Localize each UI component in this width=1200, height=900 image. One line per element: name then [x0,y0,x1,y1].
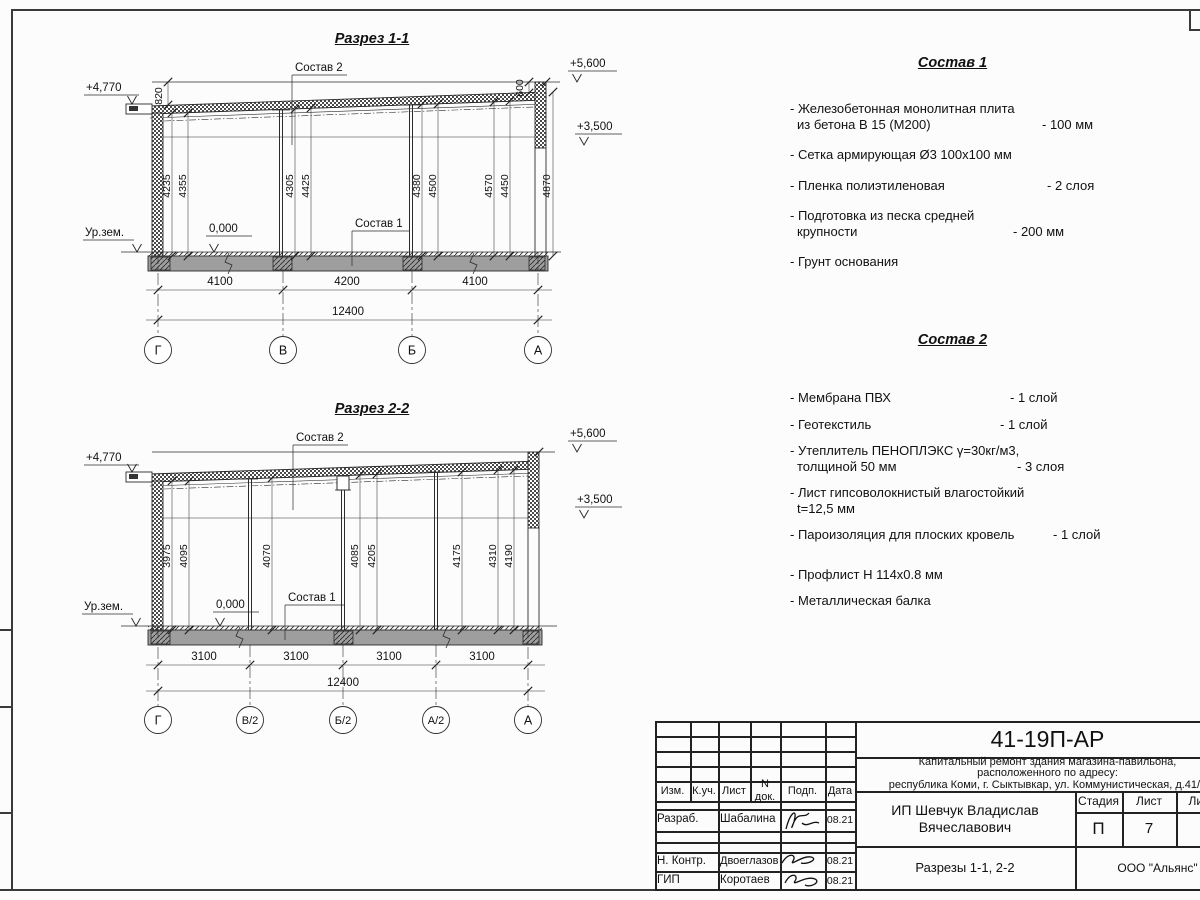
foundation-pad [334,631,353,644]
dim-label: 4500 [427,174,439,198]
signer-name: Шабалина [720,809,780,831]
elevation-label: 0,000 [216,599,245,611]
material-item: - Подготовка из песка средней крупности … [790,208,1115,239]
elevation-label: +4,770 [86,452,122,464]
dim-label: 12400 [332,306,364,318]
dim-label: 12400 [327,677,359,689]
material-item: - Пленка полиэтиленовая - 2 слоя [790,178,1115,194]
material-item: - Лист гипсоволокнистый влагостойкий t=1… [790,485,1115,516]
drawing-sheet: { "s1": { "title": "Разрез 1-1", "label_… [0,0,1200,900]
dim-label: 600 [514,79,526,97]
tb-line [655,766,855,768]
dim-label: 4355 [177,174,189,198]
dim-label: 4450 [499,174,511,198]
tb-line [655,842,855,844]
axis-label: А/2 [428,715,445,727]
tb-line [655,831,855,833]
elevation-label: +3,500 [577,494,613,506]
signature [777,847,829,891]
floor-slab [148,256,548,271]
sheets-header: Листов [1176,791,1200,812]
material-item: - Сетка армирующая Ø3 100х100 мм [790,147,1115,163]
project-description: Капитальный ремонт здания магазина-павил… [855,757,1200,791]
client-name: ИП Шевчук Владислав Вячеславович [875,791,1055,846]
dim-label: 4870 [541,174,553,198]
dim-label: 4200 [334,276,360,288]
material-item: - Утеплитель ПЕНОПЛЭКС γ=30кг/м3, толщин… [790,443,1115,474]
composition-1-block: Состав 1 - Железобетонная монолитная пли… [790,55,1115,270]
axis-label: В/2 [242,715,259,727]
leader-label: Состав 2 [296,432,344,444]
dim-label: 4100 [207,276,233,288]
col-header-ndok: N док. [750,781,780,801]
dim-label: 3100 [376,651,402,663]
signer-date: 08.21 [825,871,855,891]
axis-label: Г [155,344,162,358]
dim-label: 4305 [284,174,296,198]
signature [780,805,825,835]
material-item: - Геотекстиль - 1 слой [790,417,1115,433]
axis-label: Б/2 [335,715,351,727]
title-block: Изм. К.уч. Лист N док. Подп. Дата Разраб… [655,721,1200,891]
material-item: - Пароизоляция для плоских кровель - 1 с… [790,527,1115,543]
material-item: - Профлист Н 114х0.8 мм [790,567,1115,583]
foundation-pad [273,257,292,270]
dim-label: 3100 [469,651,495,663]
parapet-right [528,452,539,528]
signer-name: Коротаев [720,871,782,891]
organization-name: ООО "Альянс" [1075,846,1200,891]
col-header-kuch: К.уч. [690,781,718,801]
signer-role: ГИП [657,871,715,891]
composition-1-title: Состав 1 [790,55,1115,71]
section-2-2-geometry [82,441,622,734]
document-code: 41-19П-АР [855,721,1200,757]
axis-label: В [279,344,287,358]
axis-label: А [524,714,533,728]
foundation-pad [523,631,539,644]
drawing-title: Разрезы 1-1, 2-2 [855,846,1075,891]
foundation-pad [529,257,545,270]
leader-label: Состав 2 [295,62,343,74]
foundation-pad [151,631,170,644]
foundation-pad [151,257,170,270]
dim-label: 4175 [451,544,463,568]
sheet-header: Лист [1122,791,1176,812]
axis-label: Б [408,344,416,358]
dim-label: 4085 [349,544,361,568]
col-header-izm: Изм. [655,781,690,801]
ground-label: Ур.зем. [85,227,124,239]
axis-label: Г [155,714,162,728]
section-1-1-geometry [83,71,622,364]
elevation-label: +3,500 [577,121,613,133]
dim-label: 4570 [483,174,495,198]
sheet-number: 7 [1122,812,1176,846]
signer-name: Двоеглазов [720,852,782,871]
dim-label: 820 [153,87,165,105]
signer-date: 08.21 [825,809,855,831]
leader-label: Состав 1 [355,218,403,230]
elevation-label: +4,770 [86,82,122,94]
col-header-podp: Подп. [780,781,825,801]
axis-label: А [534,344,543,358]
elevation-label: +5,600 [570,58,606,70]
signer-role: Н. Контр. [657,852,715,871]
leader-label: Состав 1 [288,592,336,604]
dim-label: 3100 [191,651,217,663]
parapet-right [535,82,546,148]
col-header-list: Лист [718,781,750,801]
dim-label: 4380 [411,174,423,198]
dim-label: 3975 [161,544,173,568]
composition-2-title: Состав 2 [790,332,1115,348]
tb-line [655,751,855,753]
material-item: - Металлическая балка [790,593,1115,609]
dim-label: 4100 [462,276,488,288]
signer-role: Разраб. [657,809,715,831]
composition-2-block: Состав 2 - Мембрана ПВХ - 1 слой - Геоте… [790,332,1115,609]
dim-label: 3100 [283,651,309,663]
stage-header: Стадия [1075,791,1122,812]
elevation-label: +5,600 [570,428,606,440]
col-header-data: Дата [825,781,855,801]
dim-label: 4235 [161,174,173,198]
dim-label: 4095 [178,544,190,568]
dim-label: 4425 [300,174,312,198]
dim-label: 4310 [487,544,499,568]
signer-date: 08.21 [825,852,855,871]
tb-line [655,736,855,738]
material-item: - Грунт основания [790,254,1115,270]
dim-label: 4070 [261,544,273,568]
column-A2 [428,472,444,630]
ground-label: Ур.зем. [84,601,123,613]
dim-label: 4205 [366,544,378,568]
dim-label: 4190 [503,544,515,568]
material-item: - Мембрана ПВХ - 1 слой [790,390,1115,406]
stage-value: П [1075,812,1122,846]
material-item: - Железобетонная монолитная плита из бет… [790,101,1115,132]
elevation-label: 0,000 [209,223,238,235]
